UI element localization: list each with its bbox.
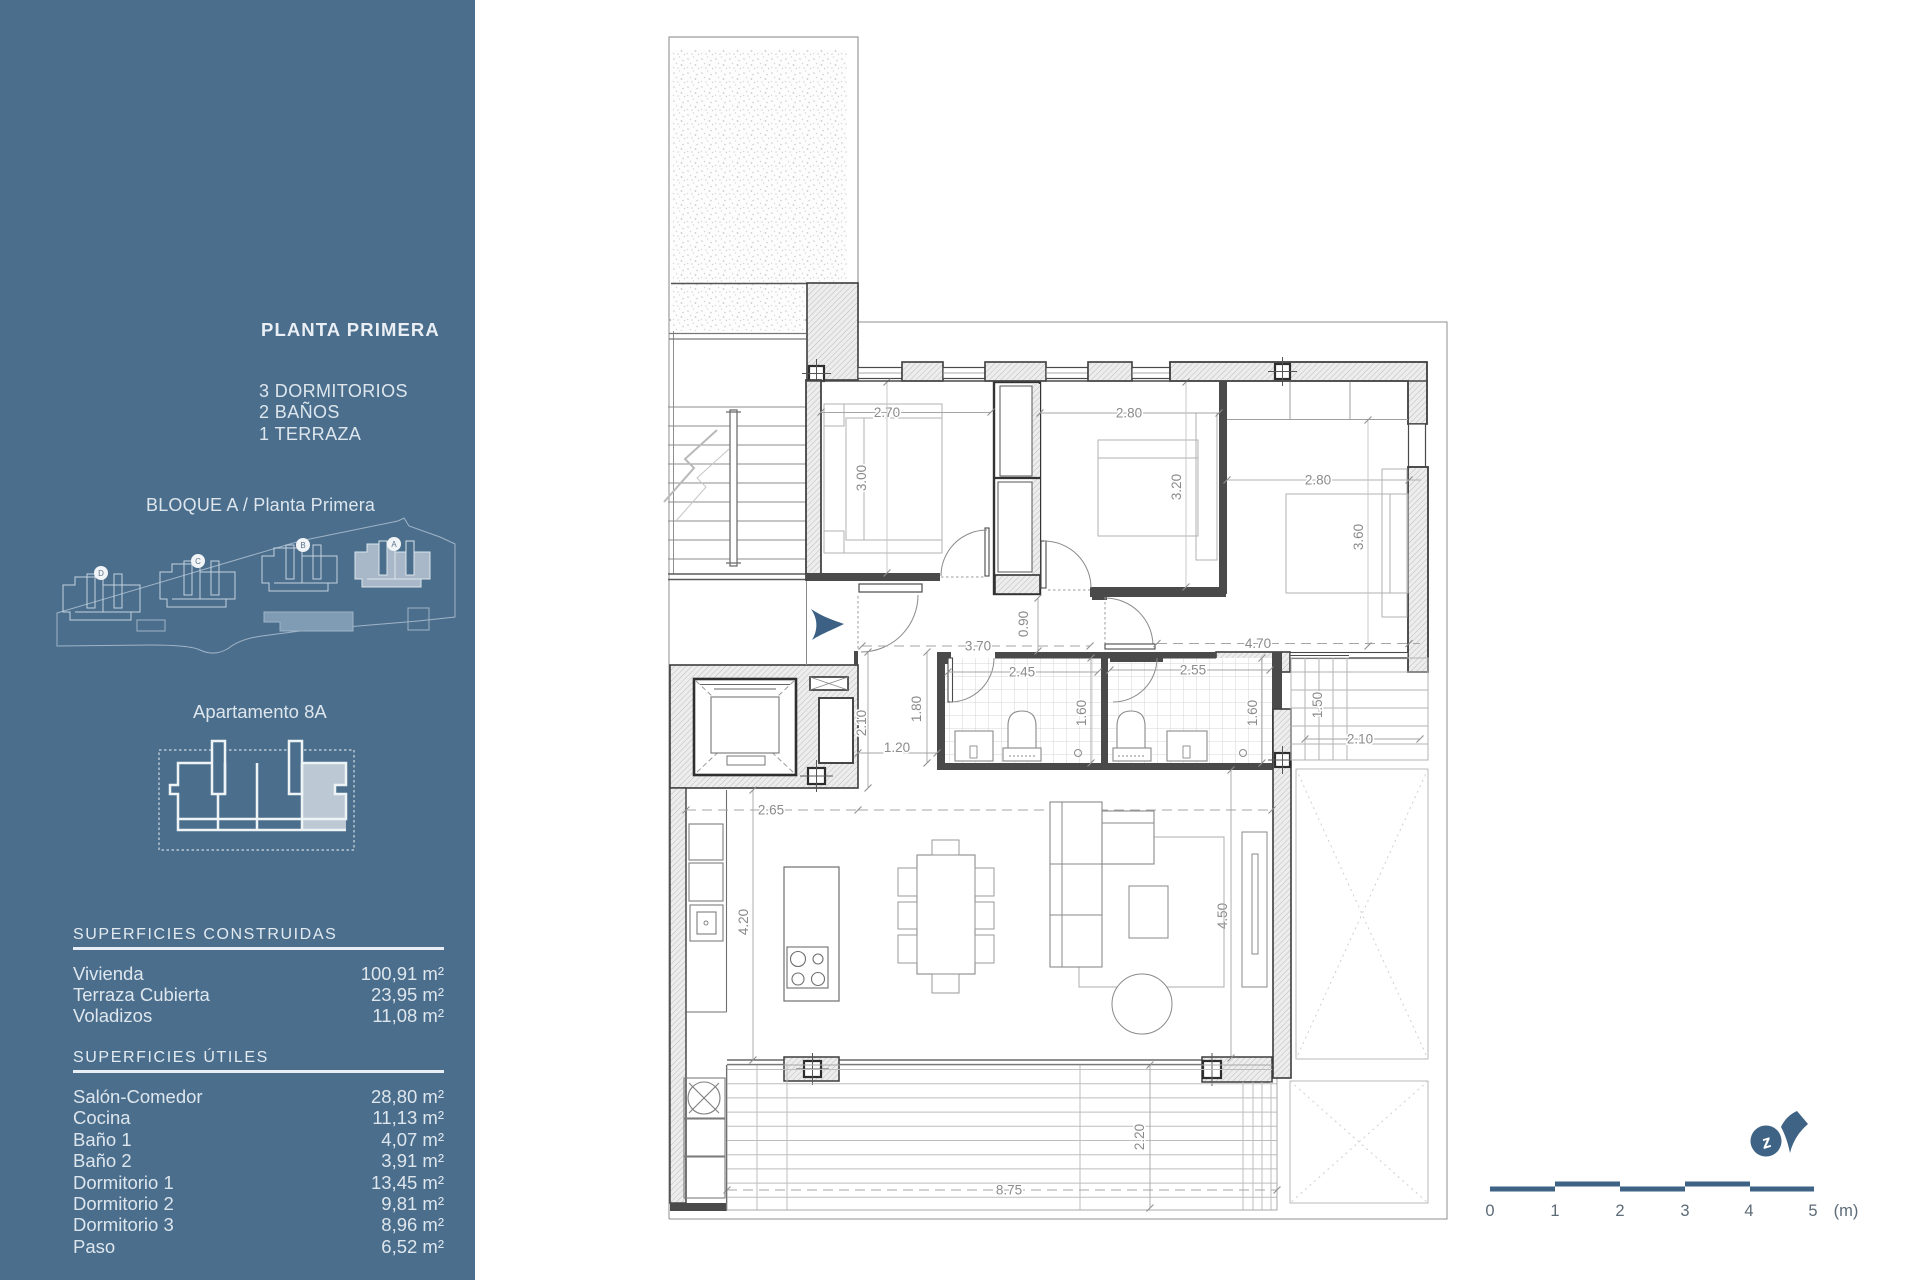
- svg-text:1.60: 1.60: [1245, 700, 1260, 726]
- svg-text:4: 4: [1744, 1202, 1753, 1220]
- svg-text:2.80: 2.80: [1116, 406, 1142, 421]
- svg-text:2.80: 2.80: [1305, 473, 1331, 488]
- svg-text:2.20: 2.20: [1132, 1124, 1147, 1150]
- svg-text:2: 2: [1615, 1202, 1624, 1220]
- svg-text:4.70: 4.70: [1245, 636, 1271, 651]
- svg-text:3.00: 3.00: [854, 465, 869, 491]
- svg-text:0.90: 0.90: [1016, 611, 1031, 637]
- svg-text:8.75: 8.75: [996, 1183, 1022, 1198]
- svg-text:1: 1: [1550, 1202, 1559, 1220]
- svg-text:2.65: 2.65: [758, 803, 784, 818]
- svg-text:1.20: 1.20: [884, 740, 910, 755]
- svg-text:3.60: 3.60: [1351, 524, 1366, 550]
- svg-text:2.10: 2.10: [854, 710, 869, 736]
- svg-text:5: 5: [1808, 1202, 1817, 1220]
- svg-text:3.70: 3.70: [965, 639, 991, 654]
- svg-text:2.55: 2.55: [1180, 663, 1206, 678]
- svg-text:(m): (m): [1834, 1202, 1859, 1220]
- svg-text:3.20: 3.20: [1169, 474, 1184, 500]
- svg-text:4.50: 4.50: [1215, 903, 1230, 929]
- svg-text:1.80: 1.80: [909, 696, 924, 722]
- svg-text:2.10: 2.10: [1347, 732, 1373, 747]
- svg-text:3: 3: [1680, 1202, 1689, 1220]
- svg-text:1.50: 1.50: [1310, 692, 1325, 718]
- svg-text:4.20: 4.20: [736, 909, 751, 935]
- svg-text:2.45: 2.45: [1009, 665, 1035, 680]
- svg-text:0: 0: [1485, 1202, 1494, 1220]
- svg-text:1.60: 1.60: [1074, 700, 1089, 726]
